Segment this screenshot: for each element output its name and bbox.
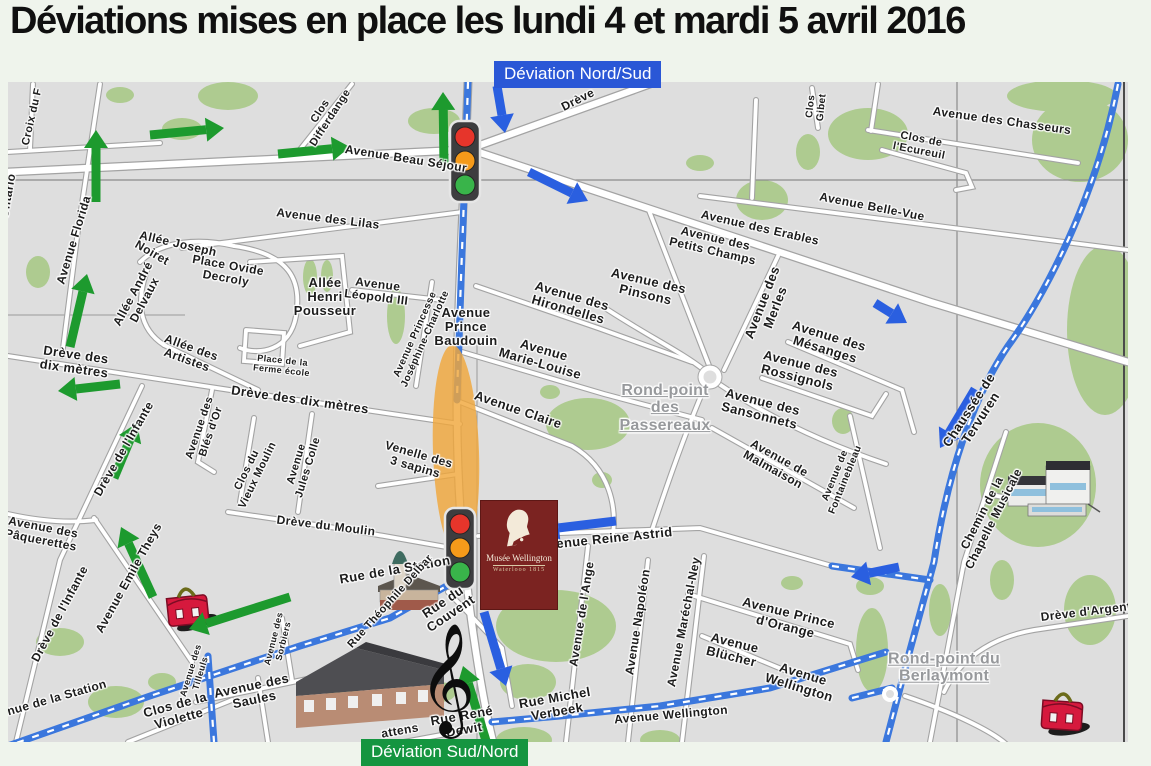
green-area bbox=[321, 260, 333, 292]
green-deviation-arrowhead bbox=[58, 377, 77, 401]
green-area bbox=[106, 87, 134, 103]
green-area bbox=[540, 385, 560, 399]
green-deviation-arrowhead bbox=[431, 92, 455, 110]
road bbox=[141, 268, 164, 345]
green-area bbox=[781, 576, 803, 590]
road bbox=[228, 512, 452, 548]
green-deviation-arrow bbox=[206, 597, 290, 624]
road bbox=[298, 84, 352, 152]
blue-deviation-arrow bbox=[875, 303, 892, 313]
road bbox=[628, 560, 648, 742]
road bbox=[298, 414, 312, 512]
deviation-route-road bbox=[208, 656, 214, 742]
road bbox=[850, 416, 880, 548]
road-casing bbox=[688, 594, 858, 670]
green-area bbox=[1067, 245, 1128, 415]
roundabout-berlaymont bbox=[884, 688, 896, 700]
road bbox=[476, 286, 692, 362]
road-casing bbox=[198, 390, 214, 472]
green-deviation-arrowhead bbox=[205, 118, 224, 142]
deviation-sud-nord-badge: Déviation Sud/Nord bbox=[361, 739, 528, 766]
green-area bbox=[929, 584, 951, 636]
green-deviation-arrowhead bbox=[84, 130, 108, 148]
road bbox=[648, 208, 710, 368]
road bbox=[724, 256, 778, 370]
deviation-map-page: Déviations mises en place les lundi 4 et… bbox=[0, 0, 1151, 766]
treble-clef-icon: 𝄞 bbox=[419, 630, 476, 726]
blue-deviation-arrow bbox=[559, 521, 616, 528]
road bbox=[94, 518, 192, 662]
road bbox=[702, 636, 784, 670]
page-title: Déviations mises en place les lundi 4 et… bbox=[10, 0, 1150, 43]
green-deviation-arrow bbox=[150, 130, 206, 135]
traffic-light-icon bbox=[445, 508, 475, 589]
musee-wellington-badge: Musée Wellington Waterlooo 1815 bbox=[480, 500, 558, 610]
roundabout-passereaux bbox=[701, 368, 719, 386]
wellington-portrait-icon bbox=[499, 507, 539, 551]
green-deviation-arrow bbox=[76, 384, 120, 389]
green-area bbox=[1064, 575, 1116, 645]
blue-deviation-arrow bbox=[497, 86, 502, 115]
green-area bbox=[990, 560, 1014, 600]
road bbox=[682, 556, 704, 742]
green-deviation-arrow bbox=[278, 149, 332, 154]
map-graphics bbox=[8, 82, 1128, 742]
road bbox=[905, 696, 1006, 742]
green-deviation-arrow bbox=[443, 110, 444, 165]
schoolbag-icon bbox=[1040, 693, 1093, 741]
road bbox=[712, 428, 854, 508]
green-area bbox=[303, 259, 317, 295]
blue-deviation-arrow bbox=[869, 567, 899, 573]
traffic-light-icon bbox=[450, 121, 480, 202]
map-canvas: Croix du FOntarioAvenue FloridaClosDiffe… bbox=[8, 82, 1128, 742]
deviation-nord-sud-badge: Déviation Nord/Sud bbox=[494, 61, 661, 88]
road bbox=[472, 150, 1128, 362]
road bbox=[688, 594, 858, 670]
musee-badge-subtitle: Waterlooo 1815 bbox=[493, 565, 545, 573]
green-area bbox=[686, 155, 714, 171]
road bbox=[240, 418, 254, 502]
church-icon bbox=[378, 551, 440, 610]
green-area bbox=[796, 134, 820, 170]
green-area bbox=[26, 256, 50, 288]
road bbox=[8, 150, 462, 172]
green-area bbox=[640, 730, 680, 742]
musee-badge-title: Musée Wellington bbox=[486, 553, 552, 563]
green-area bbox=[198, 82, 258, 110]
